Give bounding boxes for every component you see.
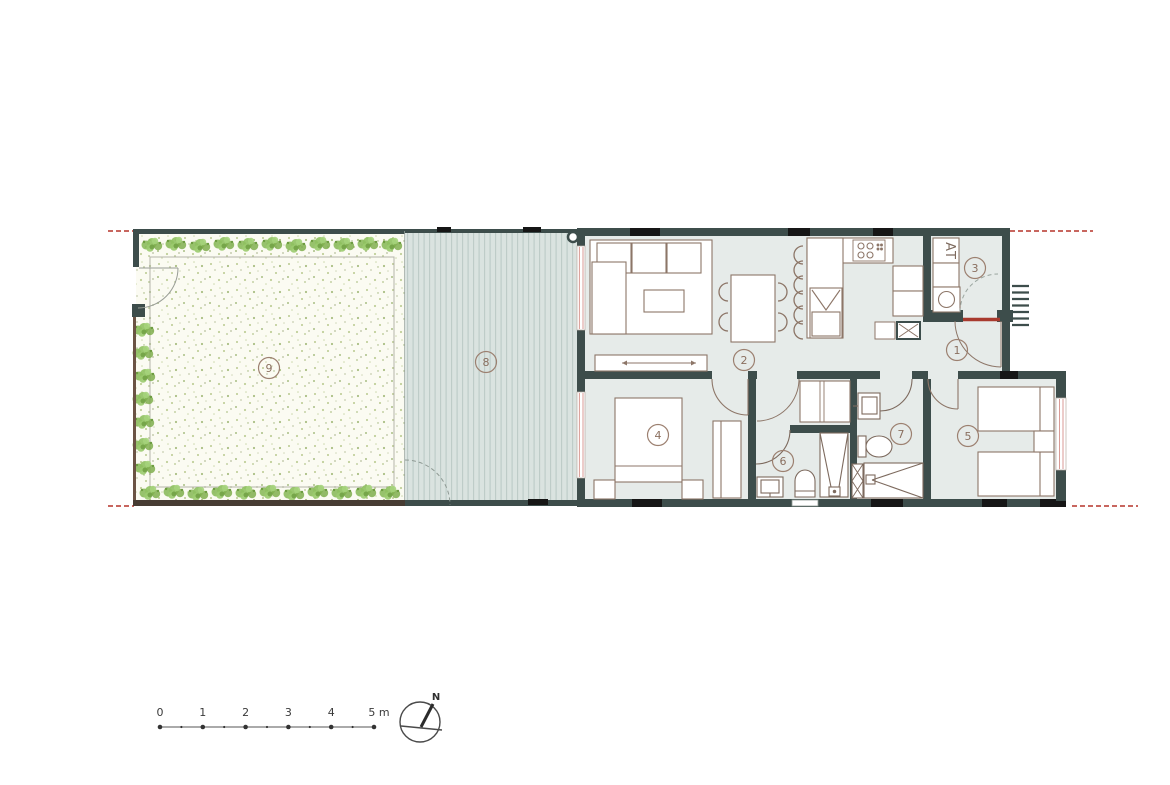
lintel-mid: [1000, 371, 1018, 379]
wall-bath2-bedroom2: [923, 379, 931, 501]
hall-closet: [800, 381, 850, 422]
nightstand-left: [594, 480, 615, 499]
vent-window-bottom: [792, 500, 818, 506]
room-number-4: 4: [655, 429, 662, 442]
deck-column: [568, 232, 578, 242]
room-number-6: 6: [780, 455, 787, 468]
wall-right-low: [1002, 322, 1010, 371]
coffee-table: [644, 290, 684, 312]
wall-bathroom1-top: [790, 425, 850, 433]
deck-wall-bottom: [405, 500, 577, 506]
deck-wall-top: [405, 229, 577, 233]
deck-lintel-2: [523, 227, 541, 232]
living-room-glass-door: [577, 246, 585, 330]
floor-plan-page: AT: [0, 0, 1170, 785]
scale-tick-5m: 5 m: [368, 706, 389, 719]
bedroom2-window: [1056, 398, 1066, 470]
wall-left-stub2: [577, 478, 585, 501]
utility-at-label: AT: [942, 242, 957, 260]
kitchen-tall-unit-2: [893, 291, 923, 316]
garden-wall-top: [133, 229, 405, 234]
wall-bedroom2-right-top: [1056, 371, 1066, 398]
utility-cabinet-2: [933, 263, 959, 287]
bathroom2-shower: [852, 463, 923, 498]
scale-bar: 0 1 2 3 4 5 m: [157, 706, 390, 729]
deck-floor: [405, 231, 577, 501]
compass-north-label: N: [432, 692, 440, 703]
kitchen-tall-unit-1: [893, 266, 923, 291]
sofa-cushion-2: [632, 243, 666, 273]
dining-table: [731, 275, 775, 342]
bed-twin-1: [978, 387, 1054, 431]
bathroom1-toilet: [795, 470, 815, 497]
bedroom1-glass-door: [577, 392, 585, 478]
garden-gate-post: [132, 304, 145, 317]
washing-machine: [933, 287, 960, 312]
room-number-9: 9: [266, 362, 273, 375]
bathroom1-sink: [757, 477, 783, 497]
wall-mid-1: [577, 371, 712, 379]
room-number-7: 7: [898, 428, 905, 441]
lintel-top-3: [873, 228, 893, 236]
nightstand-right: [682, 480, 703, 499]
cooktop: [853, 240, 885, 261]
compass-circle: [400, 702, 440, 742]
scale-tick-2: 2: [242, 706, 249, 719]
scale-tick-3: 3: [285, 706, 292, 719]
room-number-2: 2: [741, 354, 748, 367]
lintel-bottom-2: [871, 499, 903, 507]
deck-lintel-3: [528, 499, 548, 505]
exterior-stairs: [1012, 286, 1029, 325]
floor-plan-drawing: AT: [0, 0, 1170, 785]
wall-left-stub1: [577, 236, 585, 246]
sofa-cushion-3: [667, 243, 701, 273]
wall-right-top: [1002, 228, 1010, 310]
wall-kitchen-utility: [923, 236, 931, 310]
room-number-5: 5: [965, 430, 972, 443]
refrigerator: [810, 288, 842, 338]
compass-needle: [421, 704, 433, 727]
room-number-8: 8: [483, 356, 490, 369]
wall-bedroom1-hall: [748, 379, 756, 501]
scale-tick-4: 4: [328, 706, 335, 719]
garden-wall-left-stub-top: [133, 229, 139, 267]
north-arrow: N: [400, 692, 442, 742]
deck-lintel-1: [437, 227, 451, 232]
bathroom1-shower: [820, 433, 848, 497]
room-number-3: 3: [972, 262, 979, 275]
bed-twin-2: [978, 452, 1054, 496]
wall-mid-2: [797, 371, 880, 379]
sofa-chaise: [592, 262, 626, 334]
wall-left-mid: [577, 330, 585, 392]
lintel-bottom-1: [632, 499, 662, 507]
deck-terrace: [405, 227, 578, 506]
lintel-top-1: [630, 228, 660, 236]
bedroom1-wardrobe: [713, 421, 741, 498]
entry-cabinet-x: [875, 322, 920, 339]
bathroom2-shower-screen: [852, 464, 863, 498]
bathroom2-toilet: [858, 436, 892, 457]
wall-bedroom2-right-bottom: [1056, 470, 1066, 501]
room-number-1: 1: [954, 344, 961, 357]
wall-mid-pier1: [748, 371, 757, 379]
bedroom2-nightstand: [1034, 431, 1054, 452]
wall-mid-pier2: [912, 371, 928, 379]
scale-tick-1: 1: [199, 706, 206, 719]
lintel-top-2: [788, 228, 810, 236]
garden-wall-bottom: [133, 500, 405, 506]
lintel-bottom-3: [982, 499, 1007, 507]
scale-tick-0: 0: [157, 706, 164, 719]
